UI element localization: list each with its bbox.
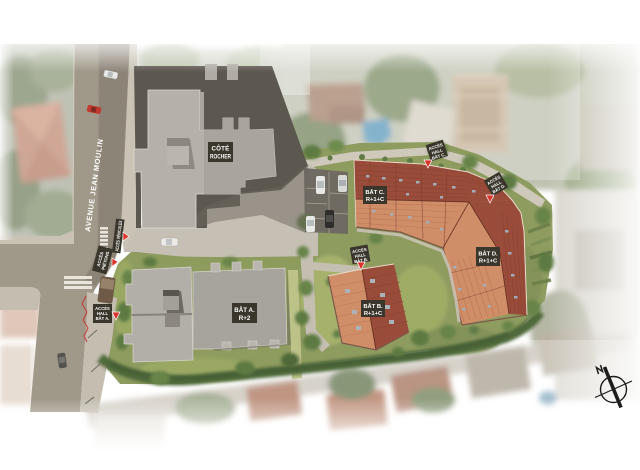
- svg-text:R+2: R+2: [239, 315, 251, 322]
- svg-text:R+1+C: R+1+C: [366, 197, 385, 203]
- svg-text:BÂT A.: BÂT A.: [96, 316, 110, 321]
- svg-text:BÂT D.: BÂT D.: [478, 251, 498, 258]
- svg-text:BÂT C.: BÂT C.: [365, 189, 385, 196]
- svg-text:R+1+C: R+1+C: [364, 311, 383, 317]
- svg-text:R+1+C: R+1+C: [479, 259, 498, 265]
- svg-text:BÂT A.: BÂT A.: [234, 307, 255, 314]
- svg-text:ROCHER: ROCHER: [210, 154, 231, 161]
- svg-text:CÔTÉ: CÔTÉ: [212, 145, 230, 153]
- svg-text:BÂT B.: BÂT B.: [363, 303, 383, 310]
